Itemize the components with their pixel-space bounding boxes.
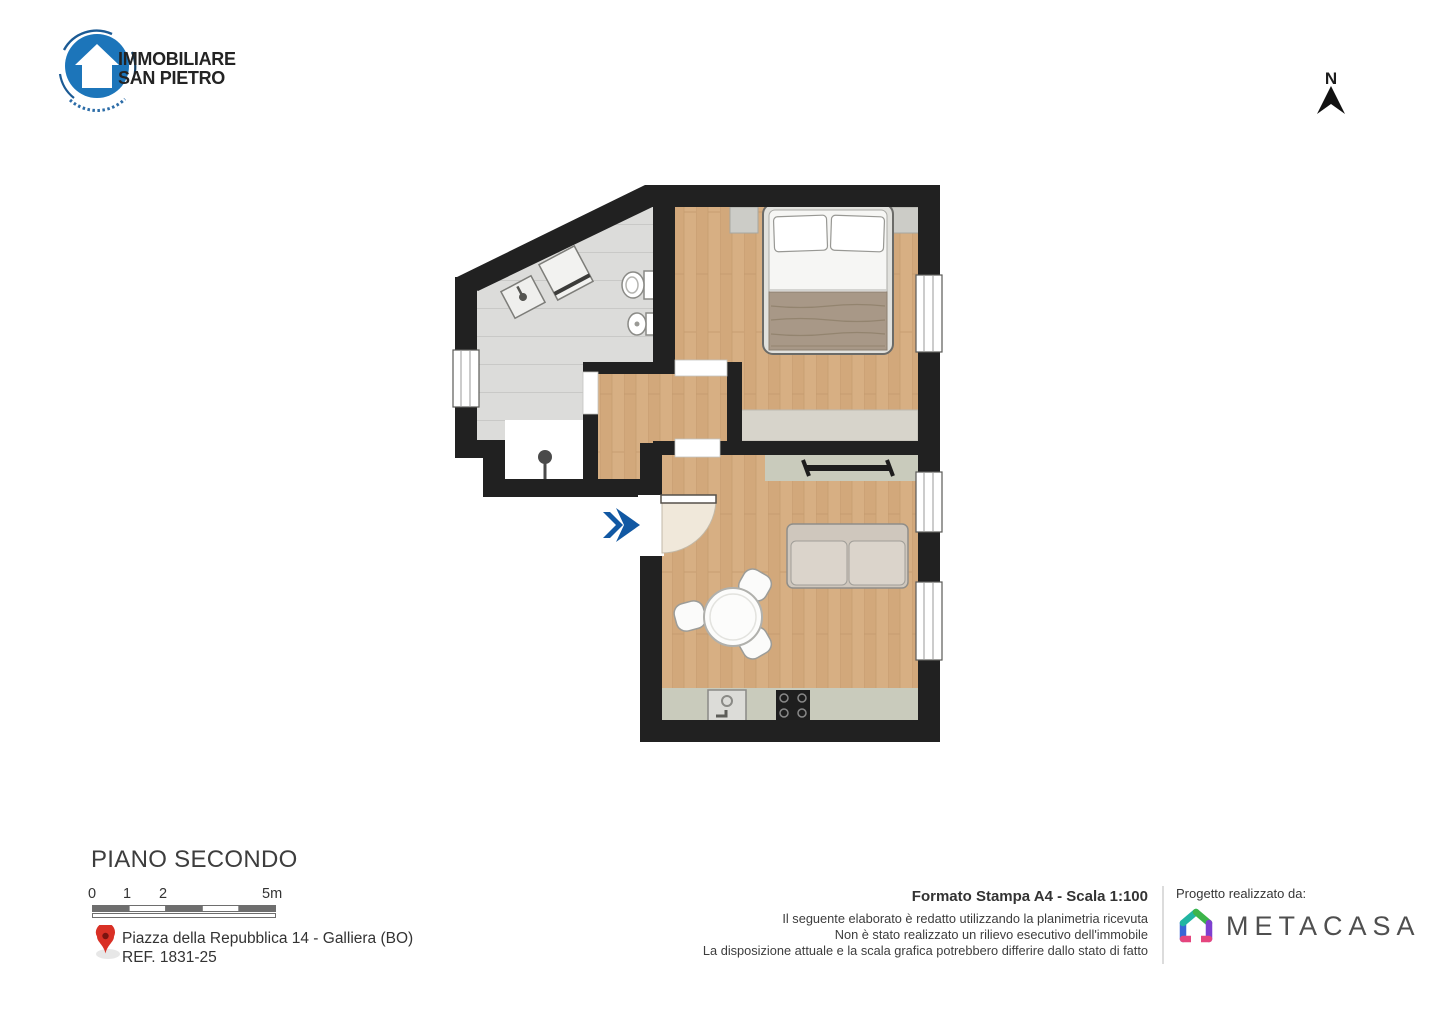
sofa xyxy=(787,524,908,588)
metacasa-logo: METACASA xyxy=(1176,904,1421,948)
floorplan-drawing xyxy=(440,175,960,755)
agency-name: IMMOBILIARE SAN PIETRO xyxy=(118,50,236,88)
disclaimer-line: La disposizione attuale e la scala grafi… xyxy=(703,943,1148,959)
address-block: Piazza della Repubblica 14 - Galliera (B… xyxy=(122,929,413,967)
house-door-cutout xyxy=(1191,934,1201,943)
bathroom-door-opening xyxy=(583,372,598,414)
agency-name-line2: SAN PIETRO xyxy=(118,69,236,88)
bedroom-door-opening xyxy=(675,360,727,376)
nightstand-right xyxy=(892,207,920,233)
kitchen-sink xyxy=(708,690,746,722)
agency-name-line1: IMMOBILIARE xyxy=(118,50,236,69)
north-arrowhead xyxy=(1317,86,1345,114)
location-pin-icon xyxy=(88,925,122,961)
scale-tick-2: 2 xyxy=(159,886,167,902)
compass-north-icon: N xyxy=(1306,60,1358,116)
hall-living-opening xyxy=(675,439,720,457)
window xyxy=(916,582,942,660)
floor-title: PIANO SECONDO xyxy=(91,846,298,874)
credit-label: Progetto realizzato da: xyxy=(1176,886,1306,901)
scale-bar xyxy=(92,905,278,919)
scale-tick-5m: 5m xyxy=(262,886,282,902)
metacasa-logo-icon xyxy=(1176,906,1216,946)
wardrobe xyxy=(732,410,918,441)
scale-tick-1: 1 xyxy=(123,886,131,902)
print-format-label: Formato Stampa A4 - Scala 1:100 xyxy=(912,888,1148,905)
toilet xyxy=(622,271,654,299)
metacasa-brand-name: METACASA xyxy=(1226,911,1421,942)
floorplan-sheet: IMMOBILIARE SAN PIETRO N xyxy=(0,0,1440,1018)
reference-number: REF. 1831-25 xyxy=(122,948,413,967)
window xyxy=(916,275,942,352)
bidet xyxy=(628,313,654,335)
pillow-right xyxy=(830,215,884,252)
stove-hob xyxy=(776,690,810,722)
logo-script-tagline xyxy=(70,99,125,110)
entrance-chevron-icon xyxy=(603,508,640,542)
shower-head-icon xyxy=(538,450,552,464)
nightstand-left xyxy=(730,207,758,233)
window xyxy=(916,472,942,532)
compass-north-label: N xyxy=(1325,69,1337,88)
disclaimer-line: Non è stato realizzato un rilievo esecut… xyxy=(703,927,1148,943)
disclaimer-line: Il seguente elaborato è redatto utilizza… xyxy=(703,911,1148,927)
entrance-opening xyxy=(638,495,664,556)
disclaimer-block: Il seguente elaborato è redatto utilizza… xyxy=(703,911,1148,959)
entrance-door-leaf xyxy=(661,495,716,503)
scale-tick-0: 0 xyxy=(88,886,96,902)
double-bed xyxy=(763,204,893,354)
round-table xyxy=(704,588,762,646)
window xyxy=(453,350,479,407)
pillow-left xyxy=(773,215,827,252)
address-line: Piazza della Repubblica 14 - Galliera (B… xyxy=(122,929,413,948)
footer-divider xyxy=(1162,886,1164,964)
